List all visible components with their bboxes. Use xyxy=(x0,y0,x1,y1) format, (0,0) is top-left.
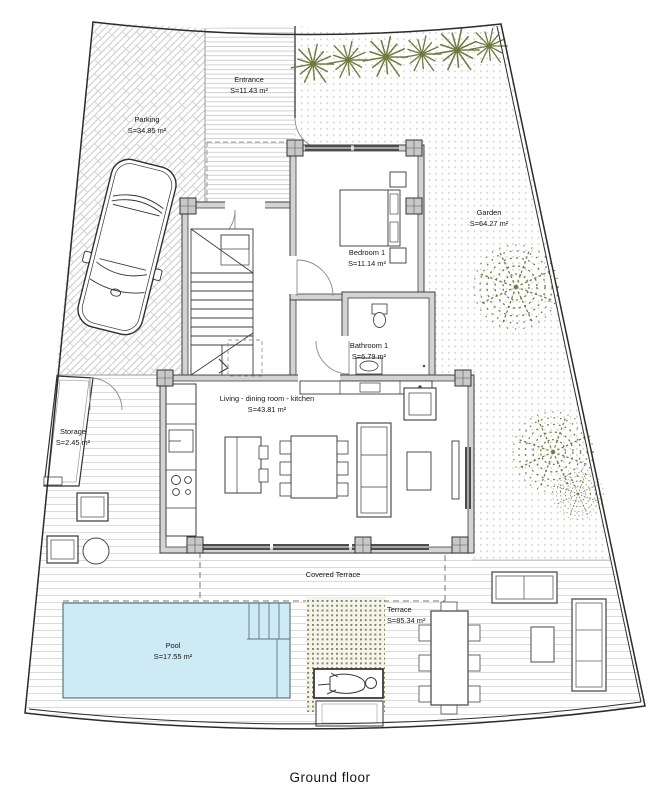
staircase xyxy=(191,229,253,375)
sofa xyxy=(357,423,391,517)
column xyxy=(157,370,173,386)
outdoor-sofa xyxy=(572,599,606,691)
column xyxy=(287,140,303,156)
nightstand xyxy=(390,248,406,263)
dining-table xyxy=(280,436,348,498)
pool xyxy=(63,603,290,698)
pool-water xyxy=(63,603,290,698)
column xyxy=(180,198,196,214)
tv-unit xyxy=(404,388,436,420)
outdoor-table xyxy=(431,611,468,705)
column xyxy=(406,140,422,156)
entrance-paving xyxy=(205,26,295,212)
floor-caption: Ground floor xyxy=(289,770,370,785)
stool xyxy=(259,446,268,459)
stool xyxy=(259,469,268,482)
toilet xyxy=(372,304,387,328)
column xyxy=(406,198,422,214)
covered-terrace-label: Covered Terrace xyxy=(306,570,361,579)
nightstand xyxy=(390,172,406,187)
sideboard xyxy=(452,441,459,499)
outdoor-side-table xyxy=(531,627,554,662)
column xyxy=(452,537,468,553)
floor-plan-canvas: ParkingS=34.85 m² EntranceS=11.43 m² Gar… xyxy=(0,0,655,790)
column xyxy=(455,370,471,386)
coffee-table xyxy=(407,452,431,490)
sun-lounger-empty xyxy=(316,701,383,726)
column xyxy=(187,537,203,553)
floor-plan-page: ParkingS=34.85 m² EntranceS=11.43 m² Gar… xyxy=(0,0,655,790)
column xyxy=(355,537,371,553)
outdoor-coffee-table xyxy=(492,572,557,603)
sun-lounger-occupied xyxy=(314,669,383,698)
floor-drain xyxy=(423,365,426,368)
kitchen-counter-left xyxy=(166,384,196,536)
